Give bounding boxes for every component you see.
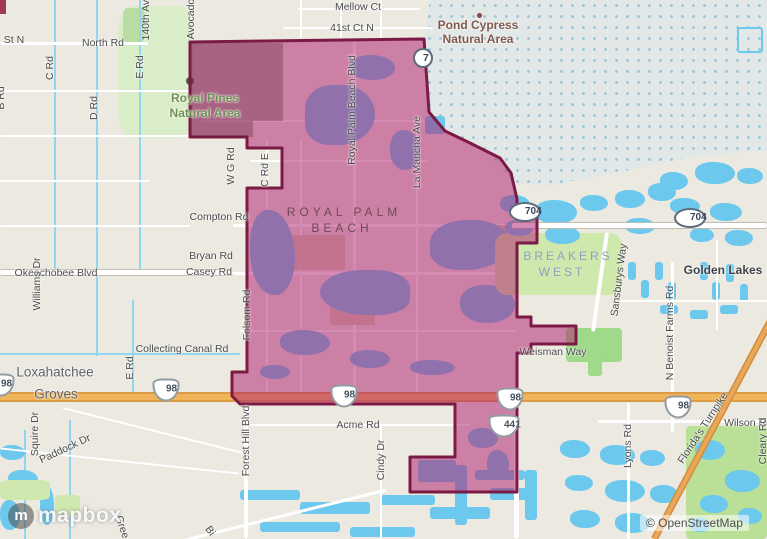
street-label-forest-hill: Forest Hill Blvd [240,406,252,477]
street-label-d-rd: D Rd [88,96,100,120]
street-label-weisman: Weisman Way [519,346,586,358]
street-label-williams-dr: Williams Dr [31,257,43,310]
cr704-shield: 704 [509,202,541,222]
boundary-dark-patch [253,43,283,121]
street-label-cindy: Cindy Dr [375,440,387,481]
street-label-bryan-rd: Bryan Rd [189,250,233,262]
poi-label-pond-cypress-1: Pond Cypress [438,18,519,32]
street-label-cleary: Cleary Rd [757,418,767,465]
hood-label-west: WEST [539,265,586,279]
street-label-okeechobee: Okeechobee Blvd [15,267,98,279]
hood-label-golden-lakes: Golden Lakes [684,263,763,277]
street-label-benoist: N Benoist Farms Rd [664,286,676,381]
poi-label-pond-cypress-2: Natural Area [443,32,514,46]
city-label-royal-palm: ROYAL PALM [287,205,401,219]
street-label-wg-rd: W G Rd [225,147,237,184]
street-label-la-mancha: La Mancha Ave [411,116,423,188]
poi-label-royal-pines-2: Natural Area [170,106,241,120]
hood-label-breakers: BREAKERS [523,249,612,263]
city-label-beach: BEACH [311,221,372,235]
street-label-b-rd: B Rd [0,86,7,109]
street-label-140th-ave: 140th Ave N [140,0,152,41]
street-label-mellow-ct: Mellow Ct [335,1,381,13]
mapbox-logo[interactable]: m mapbox [8,503,122,529]
street-label-e-rd-north: E Rd [134,55,146,78]
street-label-casey-rd: Casey Rd [186,266,232,278]
street-label-lyons: Lyons Rd [622,424,634,468]
city-label-groves: Groves [34,387,78,402]
osm-attribution[interactable]: © OpenStreetMap [640,515,749,531]
street-label-collecting-canal: Collecting Canal Rd [136,343,229,355]
city-label-loxahatchee: Loxahatchee [16,365,93,380]
street-label-compton-rd: Compton Rd [190,211,249,223]
street-label-e-rd-south: E Rd [124,356,136,379]
sr7-shield: 7 [413,48,433,68]
street-label-c-rd-e: C Rd E [259,153,271,187]
street-label-rpb-blvd: Royal Palm Beach Blvd [346,55,358,165]
street-label-avocado: Avocado [185,0,197,39]
street-label-st-n: St N [4,34,24,46]
street-label-acme: Acme Rd [336,419,379,431]
boundary-dark-patch [191,43,253,137]
map-canvas[interactable]: 7 704 704 98 98 98 98 441 98 Mellow Ct 4… [0,0,767,539]
street-label-squire: Squire Dr [29,412,41,456]
street-label-41st-ct: 41st Ct N [330,22,374,34]
cr704-shield: 704 [674,208,706,228]
poi-label-royal-pines-1: Royal Pines [171,91,239,105]
mapbox-icon: m [8,503,34,529]
street-label-north-rd: North Rd [82,37,124,49]
map-edge-fragment [0,0,6,14]
mapbox-wordmark: mapbox [38,504,122,528]
street-label-c-rd: C Rd [44,56,56,80]
street-label-folsom: Folsom Rd [241,290,253,341]
